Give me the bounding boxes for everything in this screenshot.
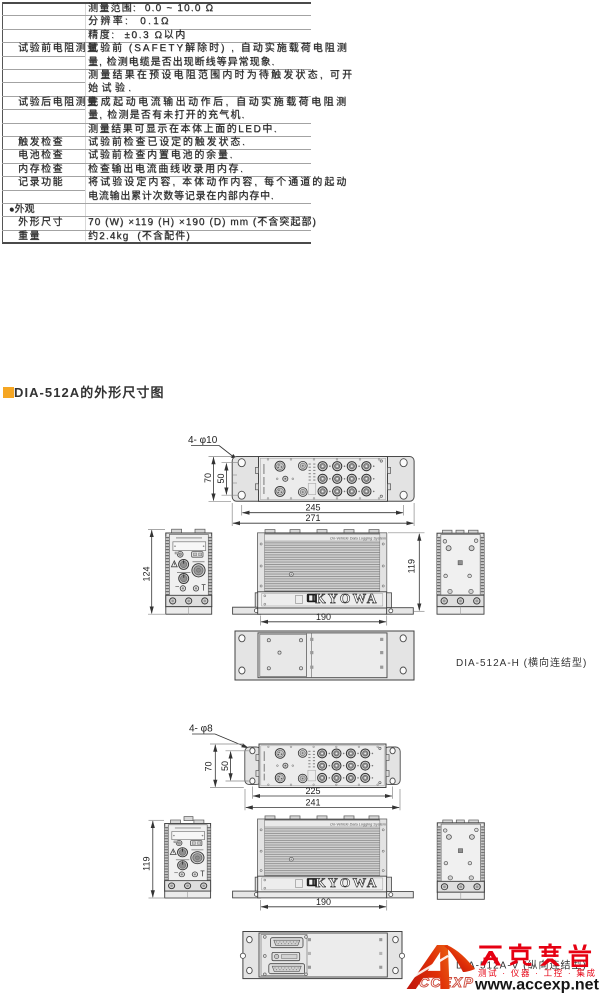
svg-text:119: 119 — [141, 857, 151, 871]
svg-text:4- φ8: 4- φ8 — [189, 724, 213, 735]
svg-text:50: 50 — [220, 761, 230, 771]
svg-text:4- φ10: 4- φ10 — [188, 435, 218, 446]
svg-text:225: 225 — [305, 786, 320, 796]
svg-text:271: 271 — [305, 513, 320, 523]
svg-text:70: 70 — [204, 761, 214, 771]
svg-text:119: 119 — [406, 559, 416, 573]
svg-text:DIA-512A-H (横向连结型): DIA-512A-H (横向连结型) — [456, 656, 587, 669]
svg-text:190: 190 — [316, 897, 331, 907]
svg-text:50: 50 — [216, 473, 226, 483]
svg-text:70: 70 — [203, 473, 213, 483]
svg-text:190: 190 — [316, 612, 331, 622]
svg-text:241: 241 — [305, 797, 320, 807]
svg-text:245: 245 — [305, 503, 320, 513]
svg-text:124: 124 — [141, 566, 151, 581]
svg-text:www.accexp.net: www.accexp.net — [474, 977, 600, 993]
